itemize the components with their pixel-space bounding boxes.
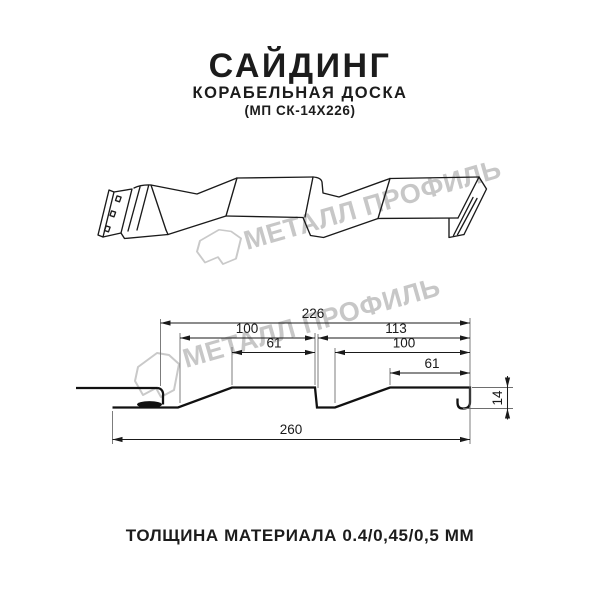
dimension-label-board1-face: 61: [266, 336, 281, 351]
watermark-upper: МЕТАЛЛ ПРОФИЛЬ: [197, 154, 505, 265]
profile-outline: [113, 388, 471, 409]
dimension-label-profile-height: 14: [490, 390, 505, 406]
nail-hole: [105, 226, 111, 232]
nail-hole: [116, 196, 122, 202]
product-drawing-page: САЙДИНГ КОРАБЕЛЬНАЯ ДОСКА (МП СК-14Х226)…: [0, 0, 600, 600]
dimension-label-board2-face: 61: [424, 356, 439, 371]
nail-strip-hem: [98, 190, 114, 237]
nail-hole: [110, 211, 116, 217]
dimension-label-overall-width: 260: [280, 422, 303, 437]
dimension-label-module-width: 226: [302, 306, 325, 321]
watermark-logo-icon: [135, 353, 179, 397]
material-thickness-note: ТОЛЩИНА МАТЕРИАЛА 0.4/0,45/0,5 ММ: [0, 526, 600, 546]
dimension-label-board2-module: 113: [385, 321, 407, 336]
drawing-canvas: МЕТАЛЛ ПРОФИЛЬ МЕТАЛЛ ПРОФИЛЬ: [0, 0, 600, 600]
watermark-logo-icon: [197, 230, 241, 264]
dimension-label-board1-width: 100: [236, 321, 259, 336]
dimension-label-board2-width: 100: [393, 336, 416, 351]
